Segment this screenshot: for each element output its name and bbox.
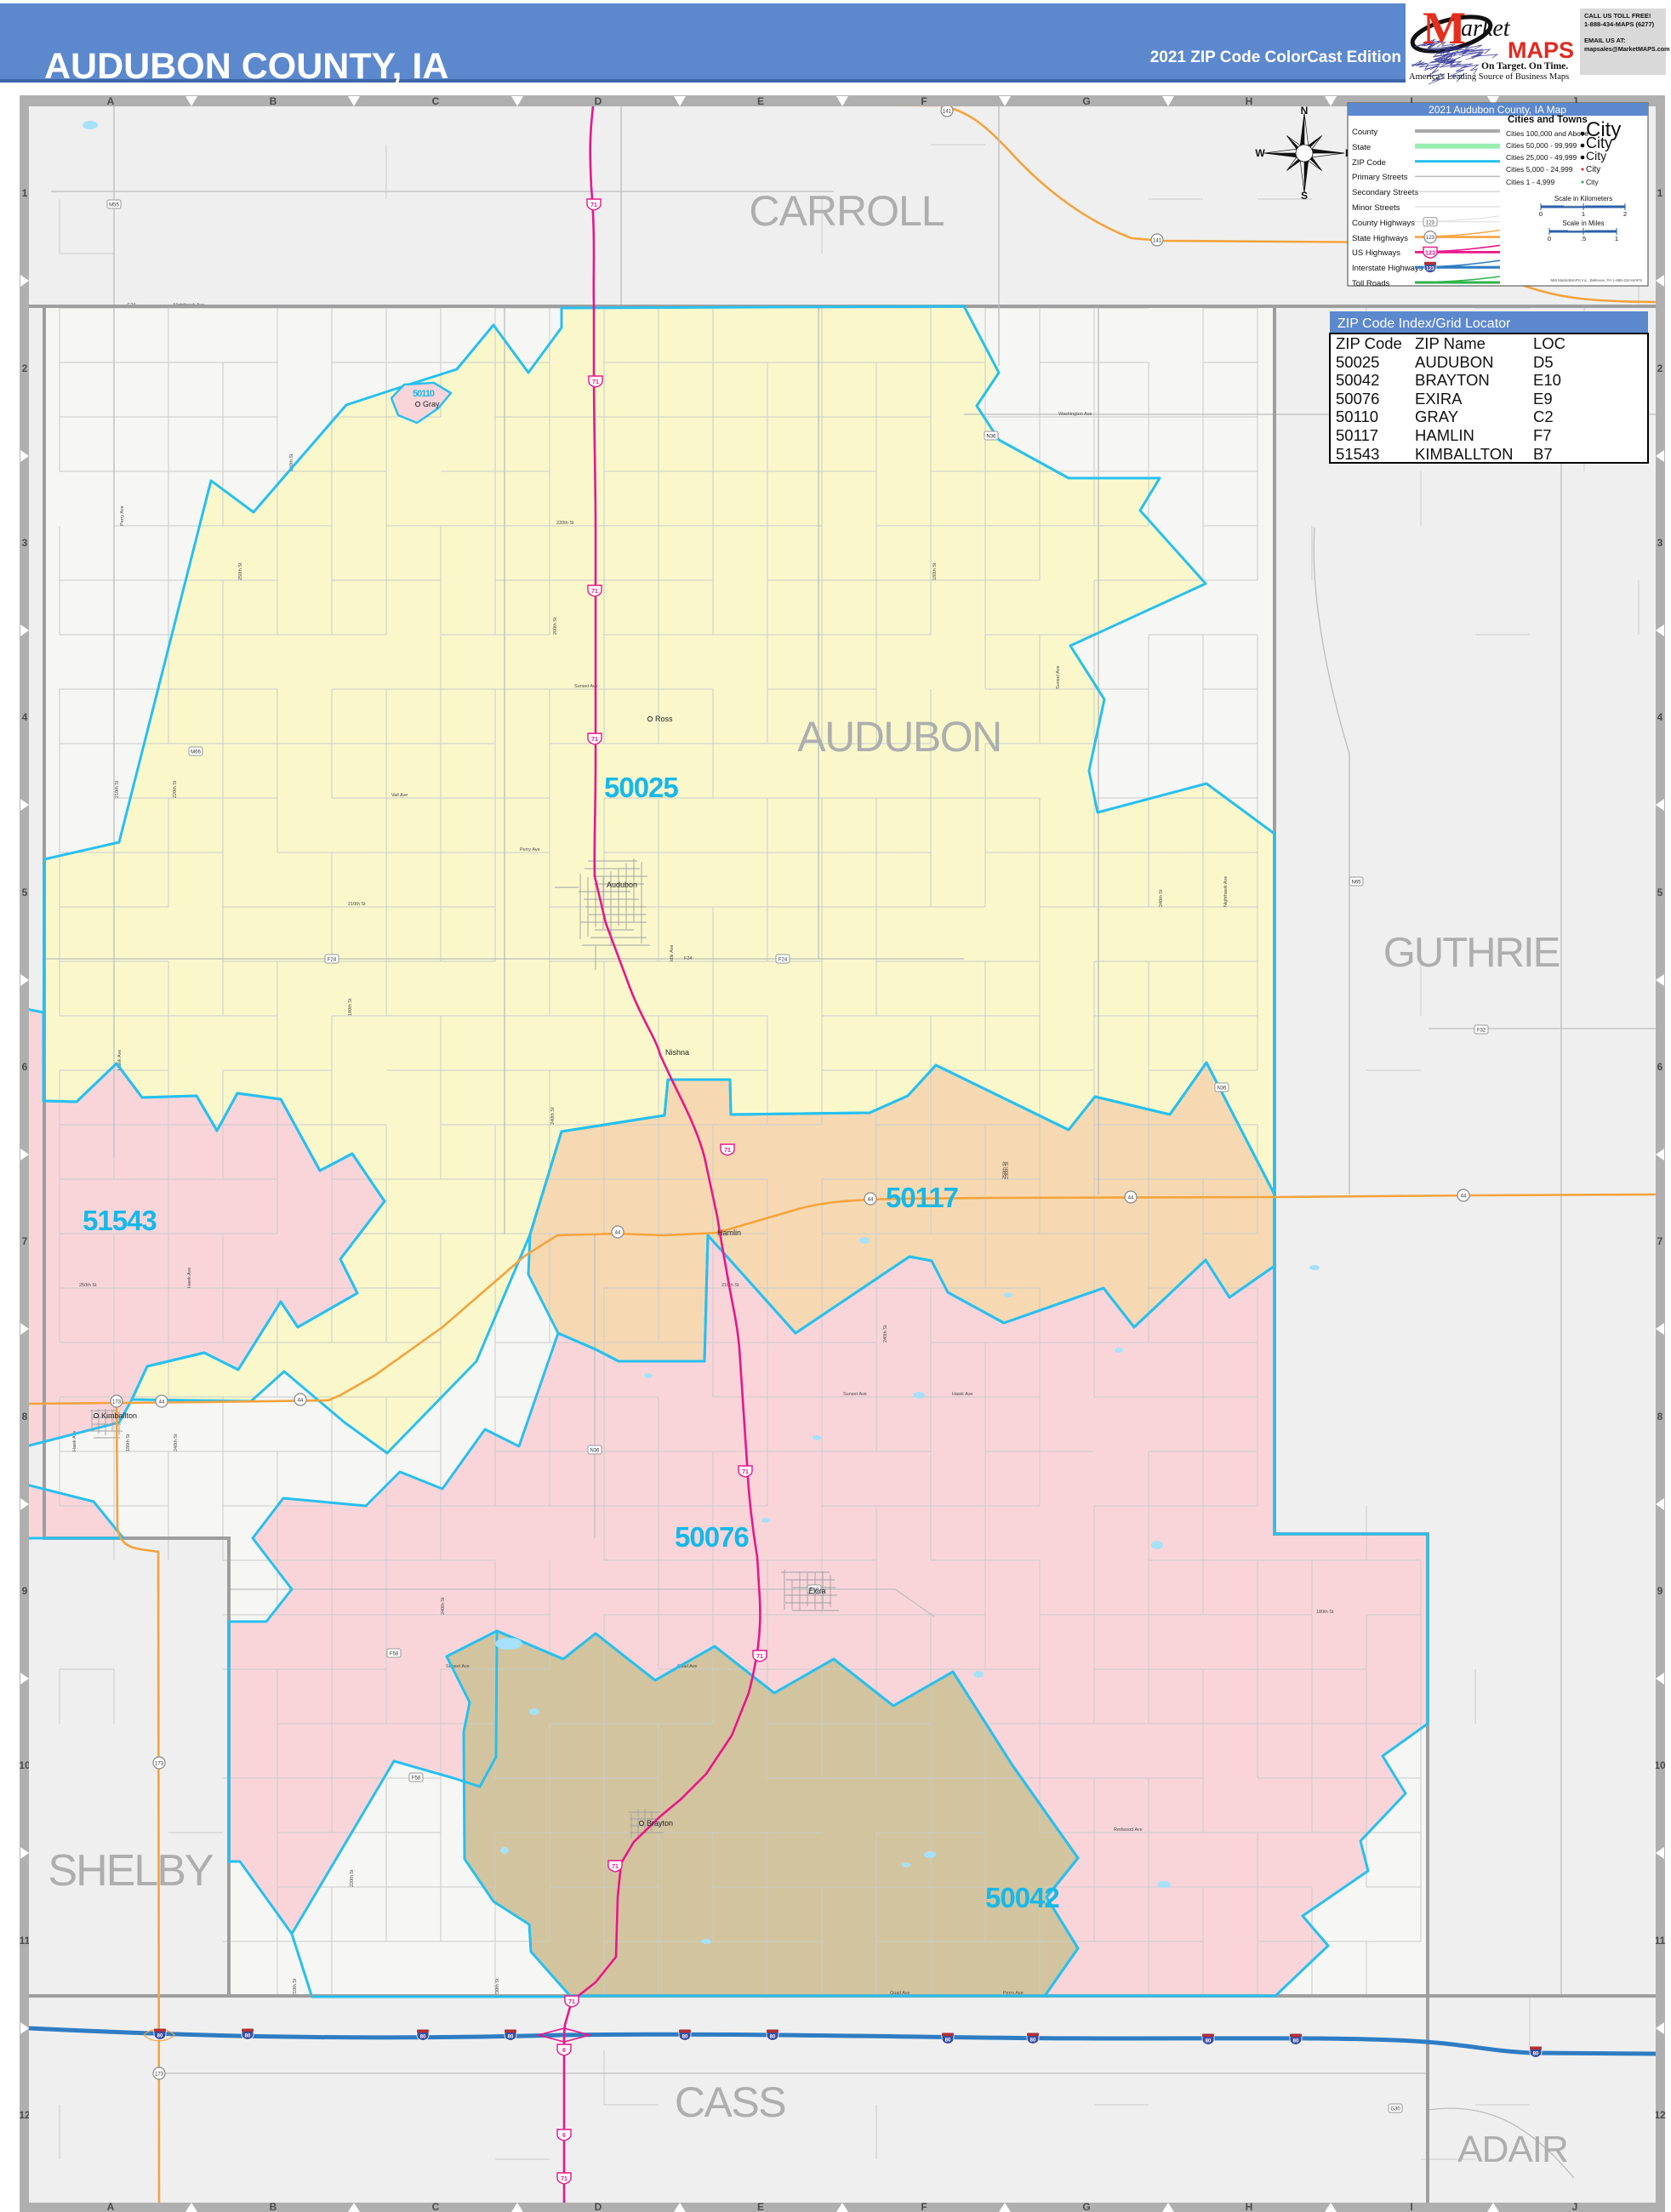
svg-text:71: 71 [612,1864,619,1870]
svg-text:240th St: 240th St [550,1107,556,1125]
svg-text:2: 2 [1657,362,1663,374]
svg-text:10: 10 [19,1759,31,1771]
svg-text:6: 6 [1657,1061,1663,1073]
svg-text:MAPS: MAPS [1508,37,1574,63]
svg-text:4: 4 [22,711,28,723]
svg-text:240th St: 240th St [441,1597,446,1615]
svg-text:Cities 1 - 4,999: Cities 1 - 4,999 [1506,178,1554,186]
svg-text:C: C [432,95,440,107]
svg-text:50110: 50110 [1336,408,1378,425]
svg-text:City: City [1586,165,1600,174]
svg-text:123: 123 [1426,267,1435,272]
svg-text:ZIP Code Index/Grid Locator: ZIP Code Index/Grid Locator [1337,316,1511,331]
svg-text:3: 3 [1657,537,1663,549]
svg-text:80: 80 [420,2035,426,2040]
svg-text:GRAY: GRAY [1415,408,1458,425]
svg-text:On Target. On Time.: On Target. On Time. [1481,61,1568,71]
svg-text:173: 173 [155,1762,164,1767]
svg-text:GUTHRIE: GUTHRIE [1383,930,1560,976]
svg-text:173: 173 [112,1400,122,1405]
svg-text:230th St: 230th St [495,1978,500,1996]
svg-text:173: 173 [155,2072,164,2078]
svg-text:E9: E9 [1533,390,1553,408]
svg-text:E10: E10 [1533,371,1561,389]
svg-text:Hawk Ave: Hawk Ave [952,1392,972,1397]
svg-text:Exira: Exira [808,1587,826,1595]
svg-text:123: 123 [1426,236,1435,241]
svg-text:1: 1 [1657,187,1663,199]
svg-text:180th St: 180th St [1316,1610,1334,1615]
svg-text:City: City [1586,149,1606,162]
svg-text:80: 80 [1206,2039,1212,2044]
svg-text:D: D [595,95,602,107]
svg-text:5: 5 [1657,887,1663,898]
svg-text:State: State [1352,143,1371,152]
svg-text:9: 9 [1657,1585,1663,1597]
svg-text:Scale in Miles: Scale in Miles [1562,219,1604,227]
svg-text:80: 80 [1030,2038,1036,2044]
svg-text:210th St: 210th St [115,780,120,798]
svg-text:12: 12 [1654,2109,1666,2121]
svg-text:3: 3 [22,537,28,549]
svg-text:240th St: 240th St [174,1434,179,1451]
svg-text:71: 71 [591,589,598,595]
svg-text:1: 1 [22,187,28,199]
svg-text:HAMLIN: HAMLIN [1415,426,1474,444]
svg-text:50042: 50042 [1336,371,1379,389]
svg-text:F58: F58 [412,1776,421,1782]
svg-text:KIMBALLTON: KIMBALLTON [1415,445,1514,463]
svg-text:US Highways: US Highways [1352,248,1400,258]
svg-text:4: 4 [1657,711,1663,723]
svg-text:ZIP Name: ZIP Name [1415,334,1486,352]
svg-text:N36: N36 [986,435,996,440]
svg-text:Cities 100,000 and Above: Cities 100,000 and Above [1506,129,1588,138]
svg-text:11: 11 [1655,1935,1666,1947]
svg-text:71: 71 [590,202,597,208]
svg-text:Kimballton: Kimballton [101,1411,137,1420]
svg-text:71: 71 [592,379,599,385]
svg-text:MM MarketMAPS Inc., Bellevue,: MM MarketMAPS Inc., Bellevue, PA 1-888-4… [1551,278,1642,282]
svg-text:Secondary Streets: Secondary Streets [1352,188,1418,197]
svg-text:123: 123 [1425,250,1435,256]
svg-text:N36: N36 [1217,1086,1227,1092]
svg-text:Scale in Kilometers: Scale in Kilometers [1554,195,1612,202]
svg-text:Washington Ave: Washington Ave [1058,412,1092,417]
svg-text:220th St: 220th St [350,1869,355,1887]
svg-text:B: B [270,95,277,107]
svg-text:ADAIR: ADAIR [1457,2129,1567,2170]
svg-text:Perry Ave: Perry Ave [120,505,125,526]
svg-text:Gray: Gray [423,400,440,408]
svg-text:Minor Streets: Minor Streets [1352,203,1400,213]
svg-text:E: E [757,95,764,107]
svg-text:SHELBY: SHELBY [48,1846,214,1896]
svg-text:210th St: 210th St [348,902,366,907]
svg-text:50117: 50117 [1336,426,1378,444]
svg-text:EMAIL US AT:: EMAIL US AT: [1584,37,1626,44]
svg-text:M: M [1423,3,1466,54]
svg-text:80: 80 [945,2038,951,2044]
svg-text:A: A [107,95,115,107]
svg-text:State Highways: State Highways [1352,234,1408,243]
svg-text:ZIP Code: ZIP Code [1352,158,1386,168]
svg-text:80: 80 [245,2034,251,2039]
svg-text:9: 9 [22,1585,28,1597]
svg-text:44: 44 [868,1198,874,1203]
svg-text:80: 80 [508,2035,514,2040]
svg-text:G: G [1082,95,1090,107]
svg-text:44: 44 [615,1231,621,1236]
svg-text:F7: F7 [1533,426,1552,444]
svg-text:180th St: 180th St [932,562,938,580]
svg-text:2: 2 [22,362,28,374]
svg-text:51543: 51543 [1336,445,1379,463]
svg-text:44: 44 [298,1399,304,1404]
svg-text:7: 7 [22,1235,28,1247]
svg-text:1-888-434-MAPS (6277): 1-888-434-MAPS (6277) [1584,20,1655,28]
svg-text:City: City [1586,178,1599,186]
svg-text:Nishna: Nishna [665,1048,689,1057]
svg-text:Hawk Ave: Hawk Ave [187,1268,192,1288]
svg-text:8: 8 [22,1411,28,1422]
svg-text:N36: N36 [590,1449,600,1454]
svg-text:F24: F24 [684,956,692,961]
svg-text:50117: 50117 [886,1182,958,1213]
svg-text:F58: F58 [390,1652,399,1657]
svg-text:Audubon: Audubon [607,881,637,889]
svg-text:Sunset Ave: Sunset Ave [446,1664,470,1669]
svg-text:0: 0 [1548,235,1551,242]
svg-text:44: 44 [1128,1196,1134,1201]
svg-text:250th St: 250th St [238,562,243,580]
svg-text:6: 6 [562,2133,566,2139]
svg-text:71: 71 [568,1999,575,2005]
svg-text:Brayton: Brayton [647,1819,673,1827]
svg-text:M55: M55 [109,203,119,208]
svg-text:80: 80 [1293,2039,1299,2044]
svg-text:80: 80 [157,2034,163,2039]
svg-text:Cities and Towns: Cities and Towns [1508,115,1588,125]
svg-text:210th St: 210th St [293,1978,298,1996]
svg-text:200th St: 200th St [553,617,558,635]
svg-text:1: 1 [1582,210,1585,218]
svg-text:80: 80 [682,2035,688,2040]
svg-text:230th St: 230th St [556,521,574,526]
svg-text:7: 7 [1657,1235,1663,1247]
svg-text:Redwood Ave: Redwood Ave [1114,1827,1143,1833]
svg-text:AUDUBON COUNTY, IA: AUDUBON COUNTY, IA [44,46,448,87]
svg-text:Toll Roads: Toll Roads [1352,279,1390,288]
svg-text:F: F [921,95,927,107]
svg-text:71: 71 [561,2176,567,2182]
svg-text:G30: G30 [1390,2107,1400,2112]
svg-text:Ross: Ross [655,715,673,723]
svg-text:CARROLL: CARROLL [749,187,944,235]
svg-text:240th St: 240th St [883,1325,888,1343]
svg-text:Cities 50,000 - 99,999: Cities 50,000 - 99,999 [1506,141,1577,150]
svg-text:Sunset Ave: Sunset Ave [574,684,598,689]
svg-text:44: 44 [159,1400,165,1405]
svg-text:2021 Audubon County, IA Map: 2021 Audubon County, IA Map [1429,104,1566,116]
svg-text:180th St: 180th St [126,1434,131,1451]
svg-text:71: 71 [756,1654,763,1660]
svg-text:.5: .5 [1581,235,1586,242]
svg-text:44: 44 [1461,1194,1467,1200]
svg-text:AUDUBON: AUDUBON [1415,353,1494,371]
svg-text:50025: 50025 [604,772,678,803]
svg-text:BRAYTON: BRAYTON [1415,371,1490,389]
svg-text:80: 80 [1533,2052,1539,2057]
svg-text:Idle Ave: Idle Ave [670,945,675,961]
svg-text:C2: C2 [1533,408,1554,425]
svg-text:Primary Streets: Primary Streets [1352,173,1408,182]
svg-text:Sunset Ave: Sunset Ave [843,1392,867,1397]
svg-text:0: 0 [1539,210,1543,218]
svg-text:250th St: 250th St [79,1283,97,1288]
svg-text:County: County [1352,128,1377,137]
svg-text:71: 71 [742,1469,749,1475]
svg-text:CASS: CASS [675,2078,785,2126]
svg-text:F24: F24 [778,958,788,963]
svg-text:Perry Ave: Perry Ave [520,847,540,852]
svg-text:N: N [1301,105,1309,117]
svg-text:H: H [1246,95,1253,107]
svg-text:240th St: 240th St [1159,889,1164,907]
svg-text:6: 6 [22,1061,28,1073]
svg-text:6: 6 [562,2048,566,2054]
svg-text:12: 12 [19,2109,31,2121]
svg-text:W: W [1255,147,1265,159]
svg-text:B7: B7 [1533,445,1553,463]
svg-text:America's Leading Source of B: America's Leading Source of Business Map… [1409,72,1569,82]
svg-text:CALL US TOLL FREE!: CALL US TOLL FREE! [1584,12,1651,20]
svg-text:ZIP Code: ZIP Code [1336,334,1402,352]
svg-text:County Highways: County Highways [1352,219,1415,228]
svg-text:50042: 50042 [985,1882,1059,1913]
svg-text:Vail Ave: Vail Ave [391,793,408,798]
svg-text:123: 123 [1426,220,1435,225]
svg-text:180th St: 180th St [348,998,353,1016]
svg-text:5: 5 [22,887,28,898]
svg-text:50076: 50076 [675,1521,749,1553]
svg-text:230th St: 230th St [1005,1161,1010,1179]
svg-text:141: 141 [943,110,952,115]
svg-text:80: 80 [770,2035,776,2040]
svg-text:71: 71 [591,737,598,743]
svg-text:50076: 50076 [1336,390,1379,408]
svg-text:Cities 25,000 - 49,999: Cities 25,000 - 49,999 [1506,153,1577,162]
svg-text:50025: 50025 [1336,353,1379,371]
svg-text:F24: F24 [328,958,337,963]
svg-text:10: 10 [1654,1759,1666,1771]
svg-text:F32: F32 [1477,1029,1486,1034]
svg-text:EXIRA: EXIRA [1415,390,1463,408]
svg-text:51543: 51543 [83,1205,157,1236]
svg-text:N65: N65 [1351,881,1361,886]
svg-text:Cities 5,000 - 24,999: Cities 5,000 - 24,999 [1506,165,1573,174]
svg-text:2: 2 [1623,210,1627,218]
svg-text:11: 11 [20,1935,31,1947]
svg-text:Nighthawk Ave: Nighthawk Ave [1223,876,1229,907]
svg-text:141: 141 [1153,239,1162,244]
svg-text:D5: D5 [1533,353,1554,371]
svg-text:50110: 50110 [413,389,435,399]
svg-text:LOC: LOC [1533,334,1565,352]
svg-text:2021 ZIP Code ColorCast Editio: 2021 ZIP Code ColorCast Edition [1150,48,1401,66]
svg-text:Hamlin: Hamlin [717,1229,741,1237]
svg-text:S: S [1301,190,1308,202]
svg-text:1: 1 [1615,235,1618,242]
svg-text:220th St: 220th St [173,780,178,798]
svg-text:Interstate Highways: Interstate Highways [1352,264,1423,273]
svg-text:AUDUBON: AUDUBON [797,713,1001,761]
svg-text:M66: M66 [191,750,201,755]
svg-text:mapsales@MarketMAPS.com: mapsales@MarketMAPS.com [1584,45,1670,53]
svg-text:arket: arket [1461,15,1511,42]
svg-text:71: 71 [724,1148,731,1154]
svg-text:8: 8 [1657,1411,1663,1422]
svg-text:Sunset Ave: Sunset Ave [1056,665,1061,689]
